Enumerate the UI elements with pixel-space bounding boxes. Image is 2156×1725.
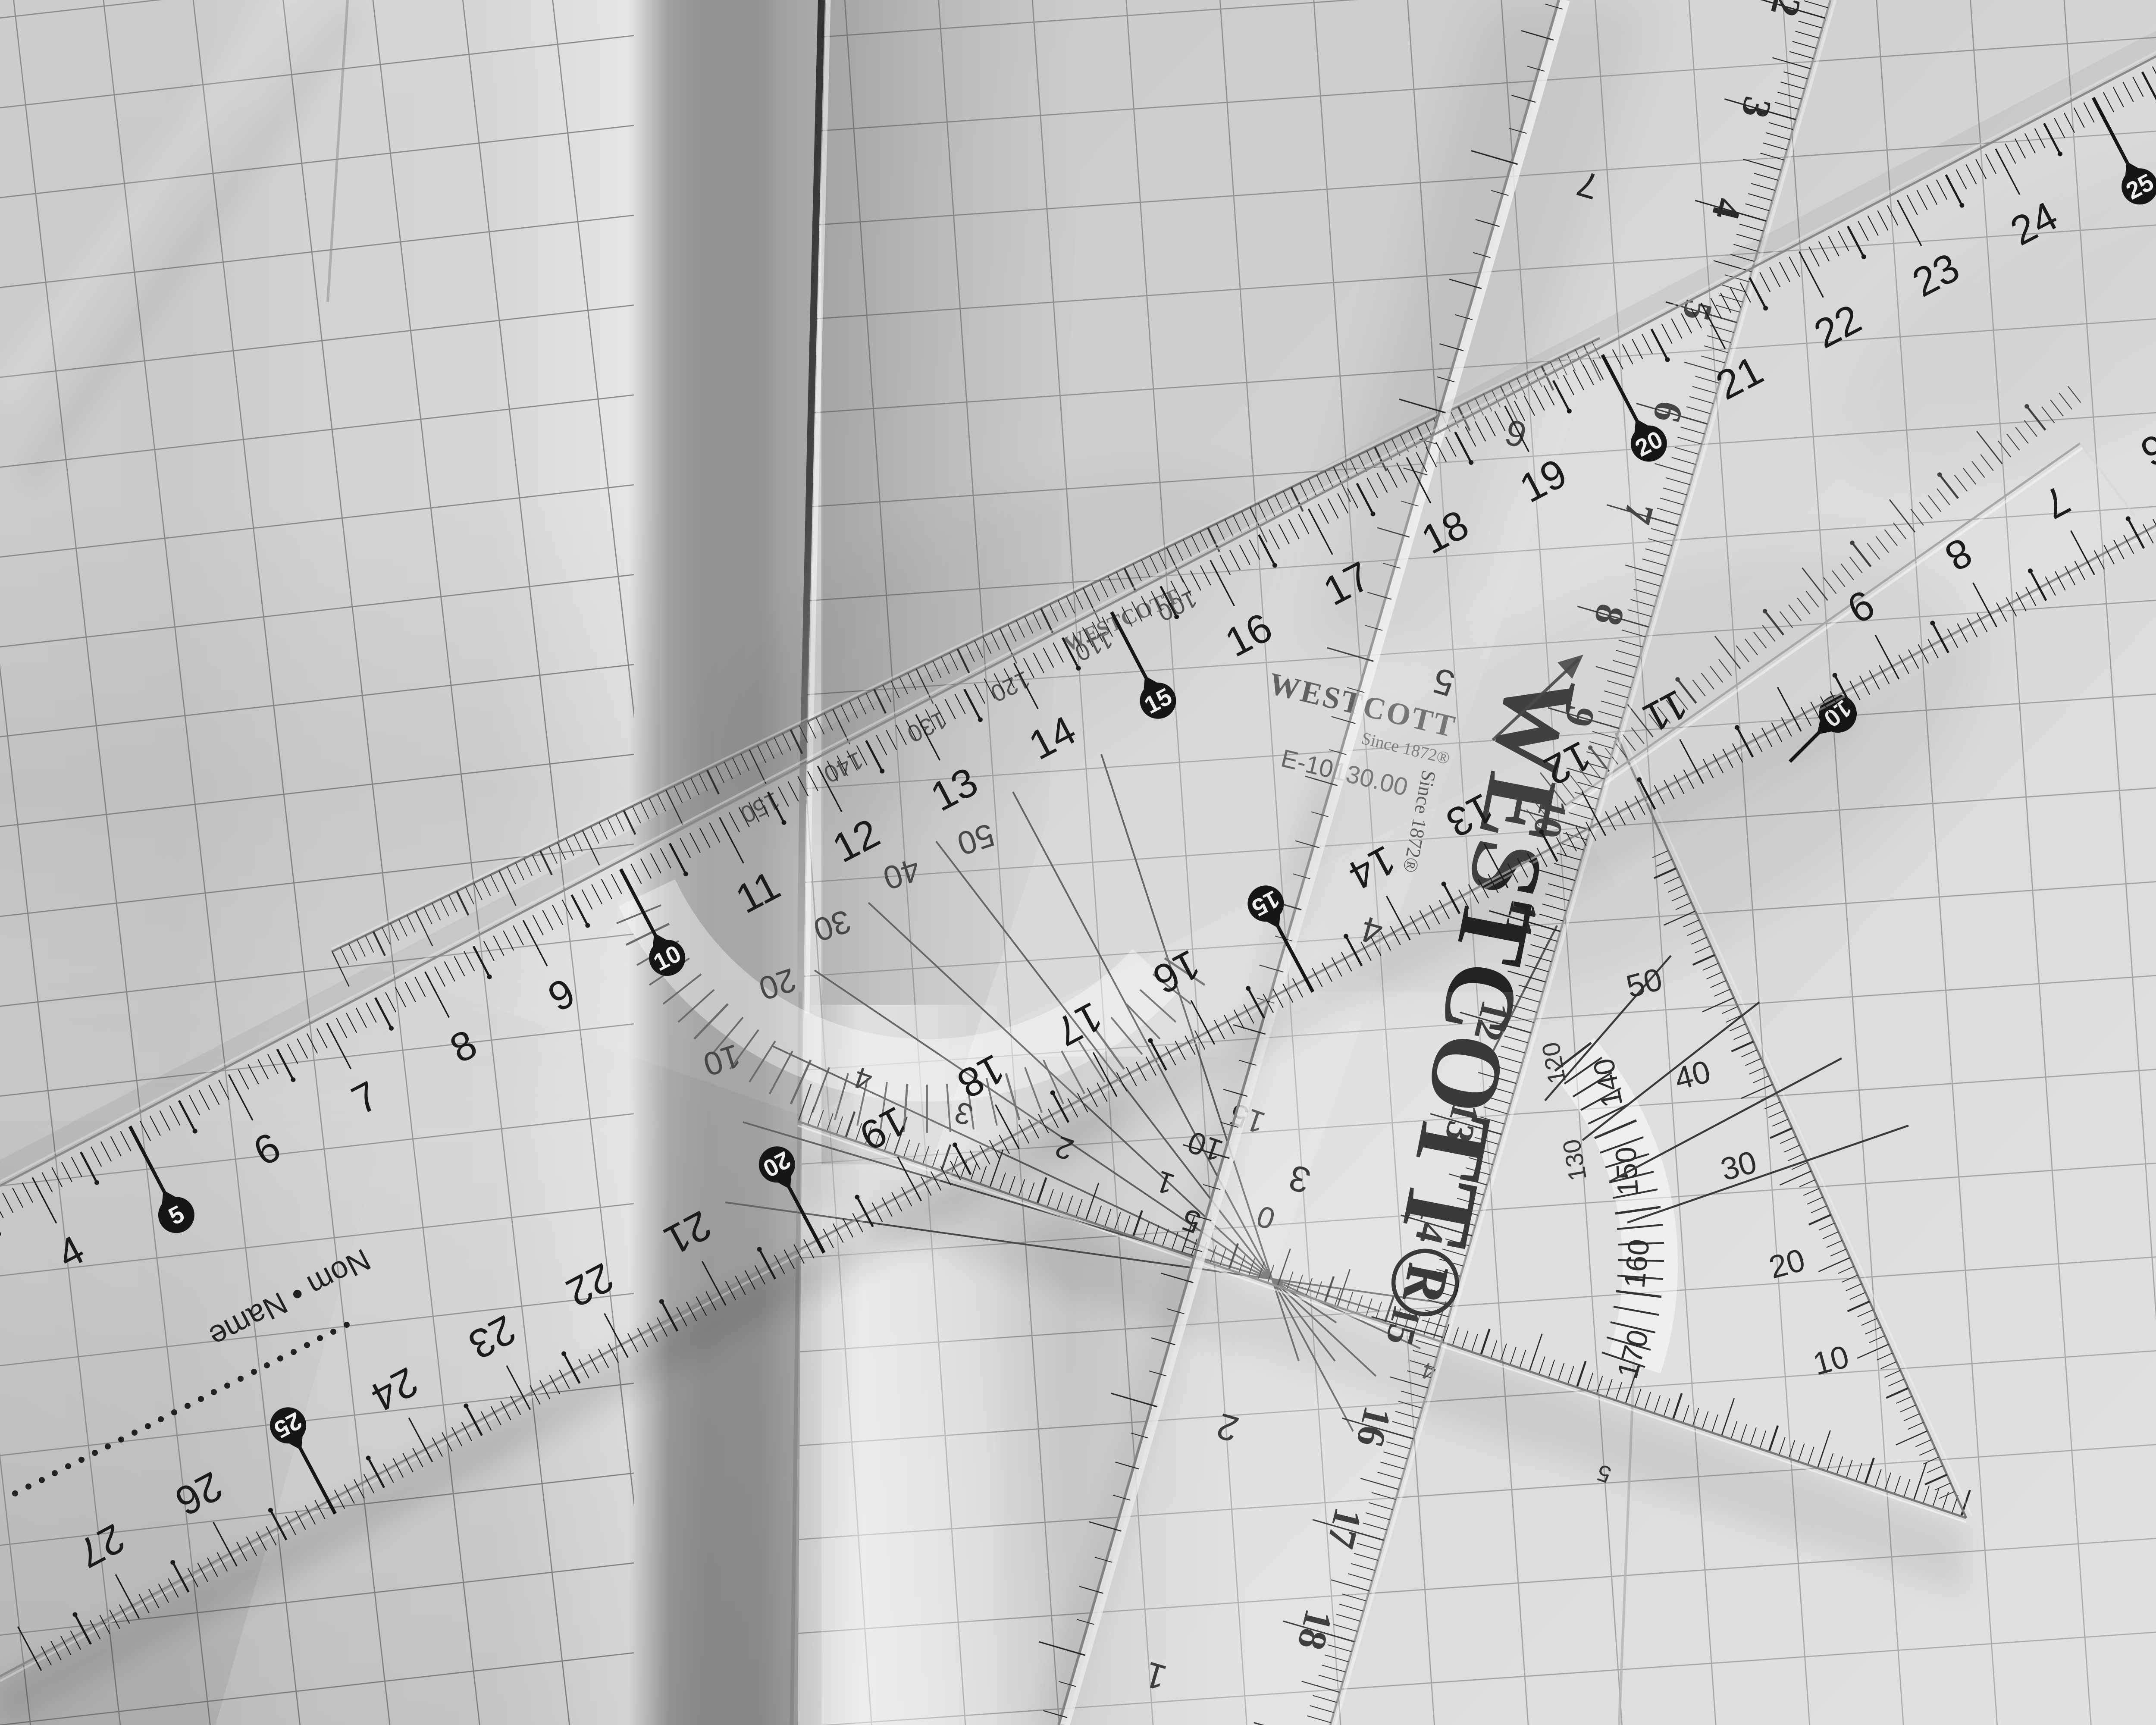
svg-text:160: 160 bbox=[1618, 1238, 1655, 1290]
svg-text:150: 150 bbox=[1609, 1146, 1645, 1196]
